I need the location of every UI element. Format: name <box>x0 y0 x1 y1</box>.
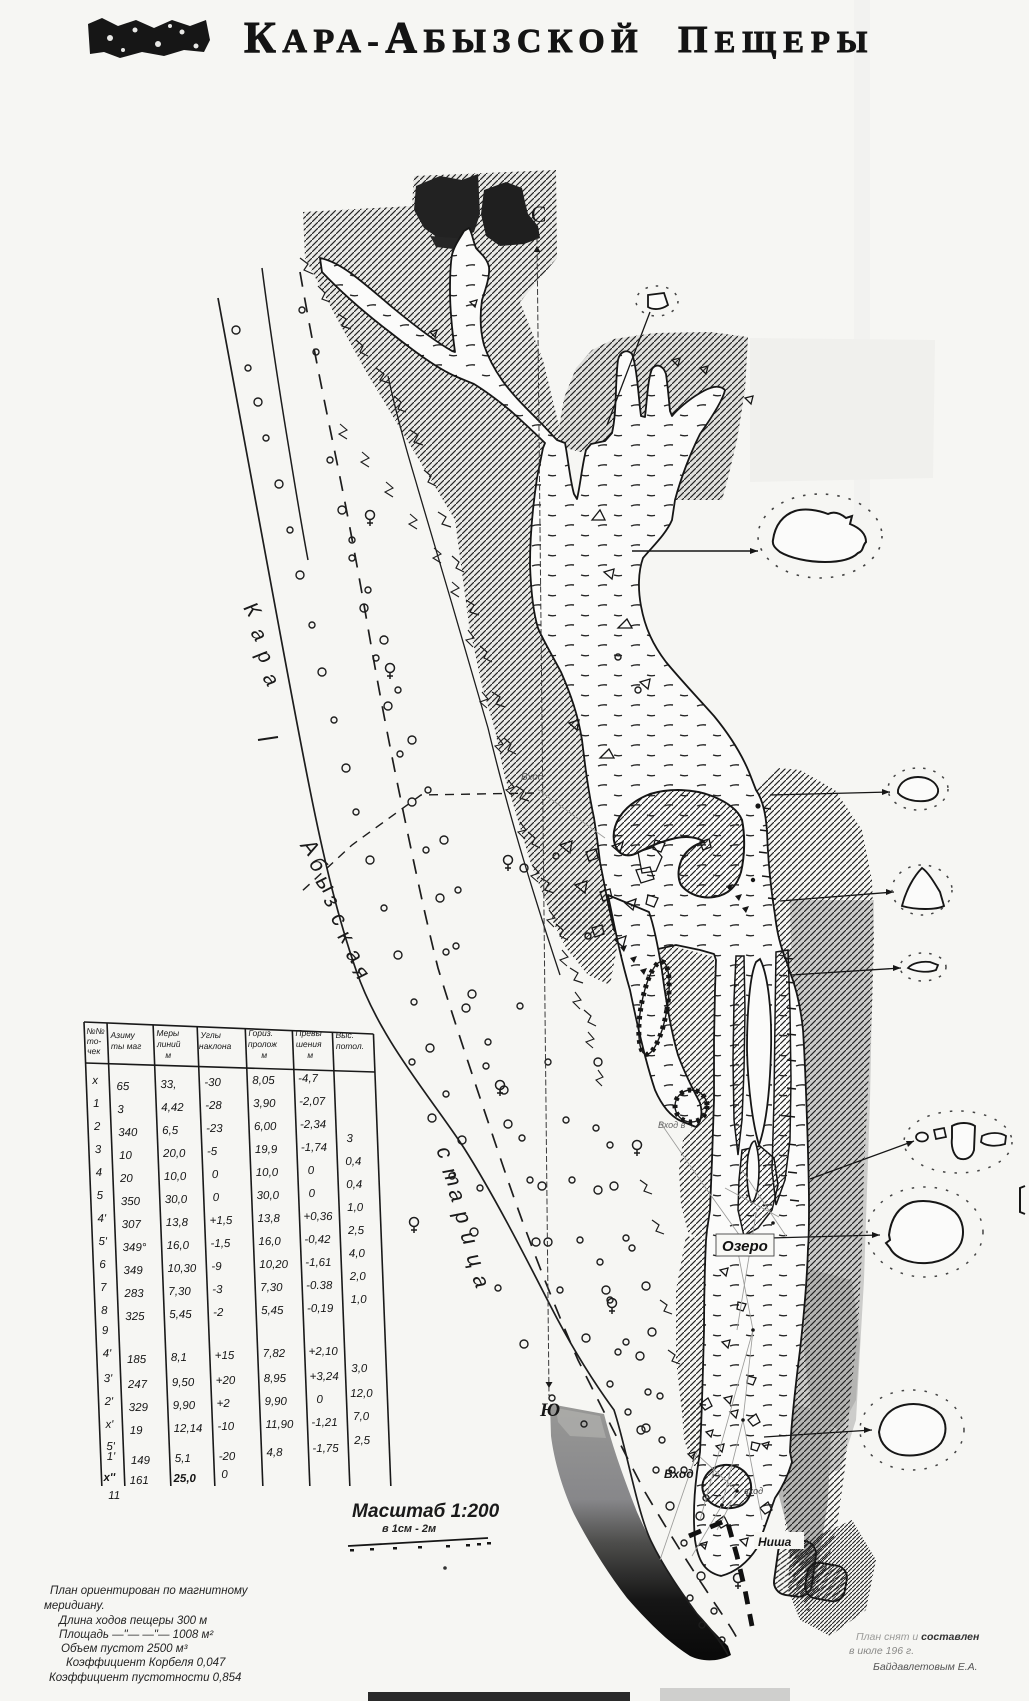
svg-text:меридиану.: меридиану. <box>44 1600 105 1612</box>
svg-text:13,8: 13,8 <box>165 1217 188 1229</box>
svg-text:Ниша: Ниша <box>758 1535 792 1549</box>
svg-text:Превы: Превы <box>295 1028 322 1038</box>
svg-text:11,90: 11,90 <box>265 1419 294 1431</box>
svg-text:30,0: 30,0 <box>165 1194 188 1206</box>
svg-text:Гориз.: Гориз. <box>248 1028 273 1038</box>
svg-text:19: 19 <box>129 1425 143 1437</box>
svg-text:2: 2 <box>93 1121 101 1133</box>
svg-text:-0.38: -0.38 <box>306 1280 333 1292</box>
svg-text:3': 3' <box>103 1373 113 1385</box>
svg-text:16,0: 16,0 <box>258 1236 281 1248</box>
svg-text:1,0: 1,0 <box>347 1202 364 1214</box>
svg-text:9: 9 <box>102 1325 109 1337</box>
svg-text:8,1: 8,1 <box>171 1352 187 1364</box>
svg-text:247: 247 <box>127 1379 148 1391</box>
svg-text:м: м <box>261 1050 267 1060</box>
svg-text:25,0: 25,0 <box>172 1473 196 1485</box>
svg-text:+2,10: +2,10 <box>308 1346 338 1358</box>
svg-text:3: 3 <box>95 1144 102 1156</box>
svg-text:-30: -30 <box>204 1077 222 1089</box>
svg-text:x': x' <box>104 1419 114 1431</box>
svg-text:1,0: 1,0 <box>350 1294 367 1306</box>
svg-text:10,20: 10,20 <box>259 1259 289 1271</box>
svg-text:пролож: пролож <box>248 1039 279 1049</box>
svg-text:-9: -9 <box>211 1261 222 1273</box>
svg-text:м: м <box>165 1050 171 1060</box>
svg-text:-23: -23 <box>206 1123 224 1135</box>
svg-text:-0,19: -0,19 <box>307 1303 334 1315</box>
svg-text:3: 3 <box>346 1133 353 1145</box>
svg-text:30,0: 30,0 <box>256 1190 279 1202</box>
svg-text:-1,75: -1,75 <box>312 1443 339 1455</box>
svg-text:1': 1' <box>106 1451 116 1463</box>
svg-text:7: 7 <box>100 1282 107 1294</box>
svg-text:Углы: Углы <box>199 1030 222 1040</box>
svg-text:-2,07: -2,07 <box>299 1096 326 1108</box>
svg-text:+1,5: +1,5 <box>209 1215 233 1227</box>
svg-text:5,45: 5,45 <box>261 1305 284 1317</box>
svg-text:10,0: 10,0 <box>164 1171 187 1183</box>
svg-text:2,5: 2,5 <box>353 1435 371 1447</box>
svg-text:5: 5 <box>96 1190 103 1202</box>
svg-text:Выс.: Выс. <box>335 1030 354 1040</box>
svg-text:в июле 196 г.: в июле 196 г. <box>849 1645 914 1657</box>
svg-text:307: 307 <box>122 1219 142 1231</box>
svg-text:0: 0 <box>212 1169 219 1181</box>
svg-text:+2: +2 <box>216 1398 230 1410</box>
svg-text:0: 0 <box>316 1394 323 1406</box>
svg-text:7,82: 7,82 <box>263 1348 286 1360</box>
svg-text:5,45: 5,45 <box>169 1309 192 1321</box>
svg-text:7,0: 7,0 <box>353 1411 370 1423</box>
svg-text:наклона: наклона <box>199 1041 232 1051</box>
svg-text:3: 3 <box>117 1104 124 1116</box>
svg-text:12,0: 12,0 <box>350 1388 373 1400</box>
svg-text:Объем пустот 2500 м³: Объем пустот 2500 м³ <box>61 1643 189 1655</box>
svg-text:Озеро: Озеро <box>722 1238 768 1255</box>
svg-text:6,5: 6,5 <box>162 1125 179 1137</box>
svg-text:4': 4' <box>97 1213 107 1225</box>
svg-text:0: 0 <box>308 1188 315 1200</box>
svg-text:9,90: 9,90 <box>173 1400 196 1412</box>
svg-text:План ориентирован по магнитном: План ориентирован по магнитному <box>50 1585 249 1597</box>
svg-text:0: 0 <box>221 1469 228 1481</box>
svg-text:0,4: 0,4 <box>346 1179 362 1191</box>
svg-text:+15: +15 <box>215 1350 236 1362</box>
svg-text:340: 340 <box>118 1127 138 1139</box>
svg-text:5,1: 5,1 <box>175 1453 191 1465</box>
svg-text:8,05: 8,05 <box>252 1075 275 1087</box>
svg-text:чек: чек <box>87 1046 102 1056</box>
svg-text:-10: -10 <box>217 1421 235 1433</box>
svg-text:11: 11 <box>108 1490 120 1502</box>
svg-text:-3: -3 <box>212 1284 223 1296</box>
svg-text:-1,5: -1,5 <box>210 1238 231 1250</box>
svg-text:С: С <box>531 202 546 227</box>
svg-text:149: 149 <box>131 1455 151 1467</box>
svg-text:1: 1 <box>93 1098 100 1110</box>
svg-text:283: 283 <box>123 1288 144 1300</box>
svg-text:65: 65 <box>116 1081 130 1093</box>
svg-text:7,30: 7,30 <box>260 1282 283 1294</box>
svg-text:потол.: потол. <box>336 1041 364 1051</box>
svg-text:ПЕЩЕРЫ: ПЕЩЕРЫ <box>678 19 874 61</box>
svg-text:2,5: 2,5 <box>347 1225 365 1237</box>
svg-text:185: 185 <box>127 1354 147 1366</box>
svg-text:-2: -2 <box>213 1307 224 1319</box>
svg-text:м: м <box>307 1050 313 1060</box>
svg-text:33,: 33, <box>160 1079 176 1091</box>
svg-text:Масштаб 1:200: Масштаб 1:200 <box>352 1501 500 1522</box>
svg-text:6: 6 <box>99 1259 106 1271</box>
svg-text:10: 10 <box>119 1150 133 1162</box>
svg-text:13,8: 13,8 <box>257 1213 280 1225</box>
svg-text:Площадь —"— —"— 1008 м²: Площадь —"— —"— 1008 м² <box>59 1629 214 1641</box>
svg-text:2': 2' <box>103 1396 114 1408</box>
svg-text:Байдавлетовым Е.А.: Байдавлетовым Е.А. <box>873 1661 978 1673</box>
svg-text:ты маг: ты маг <box>111 1041 142 1051</box>
svg-text:20,0: 20,0 <box>162 1148 186 1160</box>
svg-text:+20: +20 <box>216 1375 237 1387</box>
svg-text:Вход: Вход <box>664 1467 694 1481</box>
svg-text:Меры: Меры <box>156 1028 180 1038</box>
svg-text:161: 161 <box>129 1475 149 1487</box>
svg-text:-20: -20 <box>218 1451 236 1463</box>
svg-text:9,50: 9,50 <box>172 1377 195 1389</box>
svg-text:325: 325 <box>125 1311 145 1323</box>
svg-text:-1,21: -1,21 <box>311 1417 338 1429</box>
svg-text:0: 0 <box>213 1192 220 1204</box>
svg-text:0,4: 0,4 <box>345 1156 361 1168</box>
svg-text:-5: -5 <box>207 1146 218 1158</box>
svg-text:-28: -28 <box>205 1100 223 1112</box>
svg-text:вход: вход <box>744 1486 763 1496</box>
svg-text:в 1см - 2м: в 1см - 2м <box>382 1523 436 1535</box>
svg-text:8,95: 8,95 <box>263 1373 286 1385</box>
svg-text:-0,42: -0,42 <box>304 1234 331 1246</box>
svg-text:16,0: 16,0 <box>166 1240 189 1252</box>
svg-text:+3,24: +3,24 <box>309 1371 339 1383</box>
svg-text:шения: шения <box>296 1039 323 1049</box>
svg-text:Длина ходов пещеры 300 м: Длина ходов пещеры 300 м <box>57 1615 207 1627</box>
svg-text:План снят и составлен: План снят и составлен <box>856 1631 980 1643</box>
svg-text:19,9: 19,9 <box>255 1144 278 1156</box>
svg-text:0: 0 <box>307 1165 314 1177</box>
svg-text:349: 349 <box>123 1265 143 1277</box>
svg-text:4: 4 <box>96 1167 103 1179</box>
svg-text:10,30: 10,30 <box>167 1263 197 1275</box>
svg-text:x'': x'' <box>102 1472 117 1484</box>
svg-text:-1,74: -1,74 <box>301 1142 328 1154</box>
svg-text:20: 20 <box>119 1173 134 1185</box>
svg-text:6,00: 6,00 <box>254 1121 277 1133</box>
svg-text:Коэффициент Корбеля 0,047: Коэффициент Корбеля 0,047 <box>66 1657 226 1669</box>
svg-text:3,90: 3,90 <box>253 1098 276 1110</box>
svg-text:10,0: 10,0 <box>256 1167 279 1179</box>
svg-text:№№: №№ <box>86 1026 105 1036</box>
svg-text:Вход в: Вход в <box>658 1120 686 1130</box>
svg-text:7,30: 7,30 <box>168 1286 191 1298</box>
svg-text:4,42: 4,42 <box>161 1102 184 1114</box>
svg-text:4': 4' <box>103 1348 113 1360</box>
svg-text:-2,34: -2,34 <box>300 1119 327 1131</box>
svg-text:Ю: Ю <box>539 1400 560 1421</box>
svg-text:3,0: 3,0 <box>351 1363 368 1375</box>
svg-text:Азиму: Азиму <box>109 1030 135 1040</box>
svg-text:350: 350 <box>121 1196 141 1208</box>
svg-text:4,8: 4,8 <box>266 1447 283 1459</box>
svg-text:5': 5' <box>98 1236 108 1248</box>
svg-text:2,0: 2,0 <box>349 1271 367 1283</box>
svg-text:329: 329 <box>129 1402 149 1414</box>
svg-text:Вход: Вход <box>521 772 544 783</box>
svg-text:Коэффициент пустотности 0,854: Коэффициент пустотности 0,854 <box>49 1672 241 1684</box>
svg-text:линий: линий <box>156 1039 181 1049</box>
svg-text:4,0: 4,0 <box>349 1248 366 1260</box>
svg-text:то-: то- <box>87 1036 102 1046</box>
svg-text:8: 8 <box>101 1305 108 1317</box>
svg-text:-1,61: -1,61 <box>305 1257 332 1269</box>
svg-text:349°: 349° <box>122 1242 147 1254</box>
svg-text:+0,36: +0,36 <box>303 1211 333 1223</box>
svg-text:-4,7: -4,7 <box>298 1073 319 1085</box>
svg-text:12,14: 12,14 <box>173 1423 202 1435</box>
svg-text:9,90: 9,90 <box>264 1396 287 1408</box>
